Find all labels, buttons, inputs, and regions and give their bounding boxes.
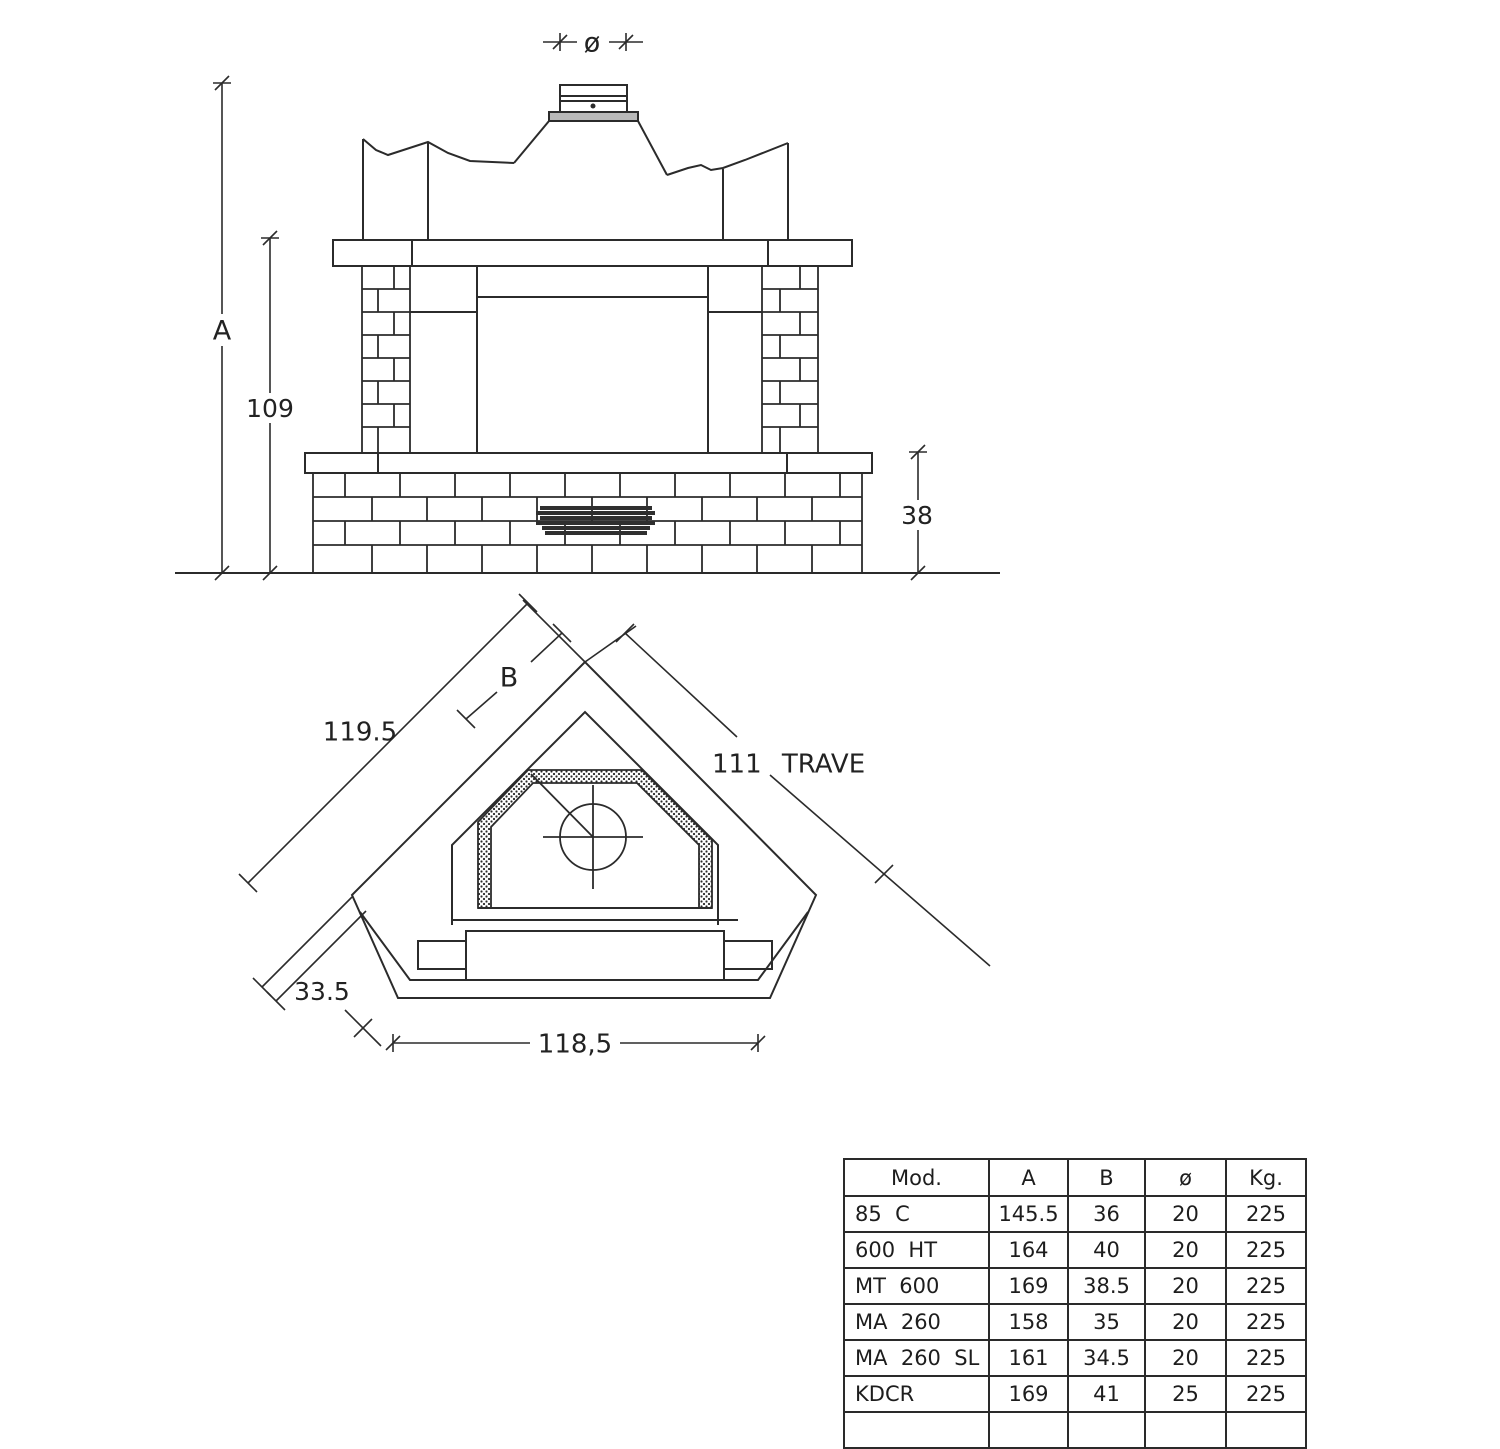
- label-back-left: 119.5: [323, 718, 397, 748]
- table-row: MA 260 SL 161 34.5 20 225: [844, 1340, 1306, 1376]
- col-header-kg: Kg.: [1226, 1159, 1306, 1196]
- label-beam: 111 TRAVE: [712, 750, 865, 780]
- label-side-width: 33.5: [294, 977, 350, 1006]
- chimney-pipe: [560, 85, 627, 112]
- front-elevation: [175, 33, 1000, 580]
- label-flue-diameter: ø: [584, 28, 601, 59]
- model-cell: 85 C: [844, 1196, 989, 1232]
- broken-edge-right: [667, 143, 788, 175]
- model-cell: 600 HT: [844, 1232, 989, 1268]
- model-cell: KDCR: [844, 1376, 989, 1412]
- hearth-slab: [305, 453, 872, 473]
- col-header-a: A: [989, 1159, 1068, 1196]
- table-row: 600 HT 164 40 20 225: [844, 1232, 1306, 1268]
- col-header-model: Mod.: [844, 1159, 989, 1196]
- flue-collar: [549, 112, 638, 121]
- brick-pillar-right: [762, 266, 818, 453]
- firebox-wall-hatch: [478, 770, 712, 908]
- label-total-height: A: [213, 316, 232, 347]
- table-row: KDCR 169 41 25 225: [844, 1376, 1306, 1412]
- dim-beam: [585, 624, 990, 966]
- model-cell: MA 260: [844, 1304, 989, 1340]
- fireplace-technical-sheet: ø A 109 38 119.5 B 111 TRAVE 33.5 118,5 …: [0, 0, 1500, 1427]
- spec-table-header-row: Mod. A B ø Kg.: [844, 1159, 1306, 1196]
- dim-back-left: [239, 594, 585, 892]
- spec-table: Mod. A B ø Kg. 85 C 145.5 36 20 225 600 …: [843, 1158, 1307, 1449]
- table-row: MT 600 169 38.5 20 225: [844, 1268, 1306, 1304]
- model-cell: MT 600: [844, 1268, 989, 1304]
- label-base-height: 38: [901, 501, 933, 530]
- label-hood-depth: B: [500, 663, 519, 694]
- table-row-partial: [844, 1412, 1306, 1448]
- label-front-width: 118,5: [538, 1030, 612, 1060]
- table-row: MA 260 158 35 20 225: [844, 1304, 1306, 1340]
- model-cell: MA 260 SL: [844, 1340, 989, 1376]
- dimension-labels: ø A 109 38 119.5 B 111 TRAVE 33.5 118,5: [206, 28, 936, 1060]
- mantel-shelf: [333, 240, 852, 266]
- table-row: 85 C 145.5 36 20 225: [844, 1196, 1306, 1232]
- label-mantel-height: 109: [246, 394, 294, 423]
- flue-outlet-mark: [531, 774, 643, 889]
- col-header-b: B: [1068, 1159, 1145, 1196]
- plan-hearth-platform: [418, 920, 772, 980]
- hood: [514, 121, 667, 175]
- fireplace-opening: [410, 266, 762, 453]
- broken-edge-left: [363, 139, 514, 163]
- brick-pillar-left: [362, 266, 410, 453]
- plan-view: [239, 594, 990, 1052]
- col-header-diameter: ø: [1145, 1159, 1226, 1196]
